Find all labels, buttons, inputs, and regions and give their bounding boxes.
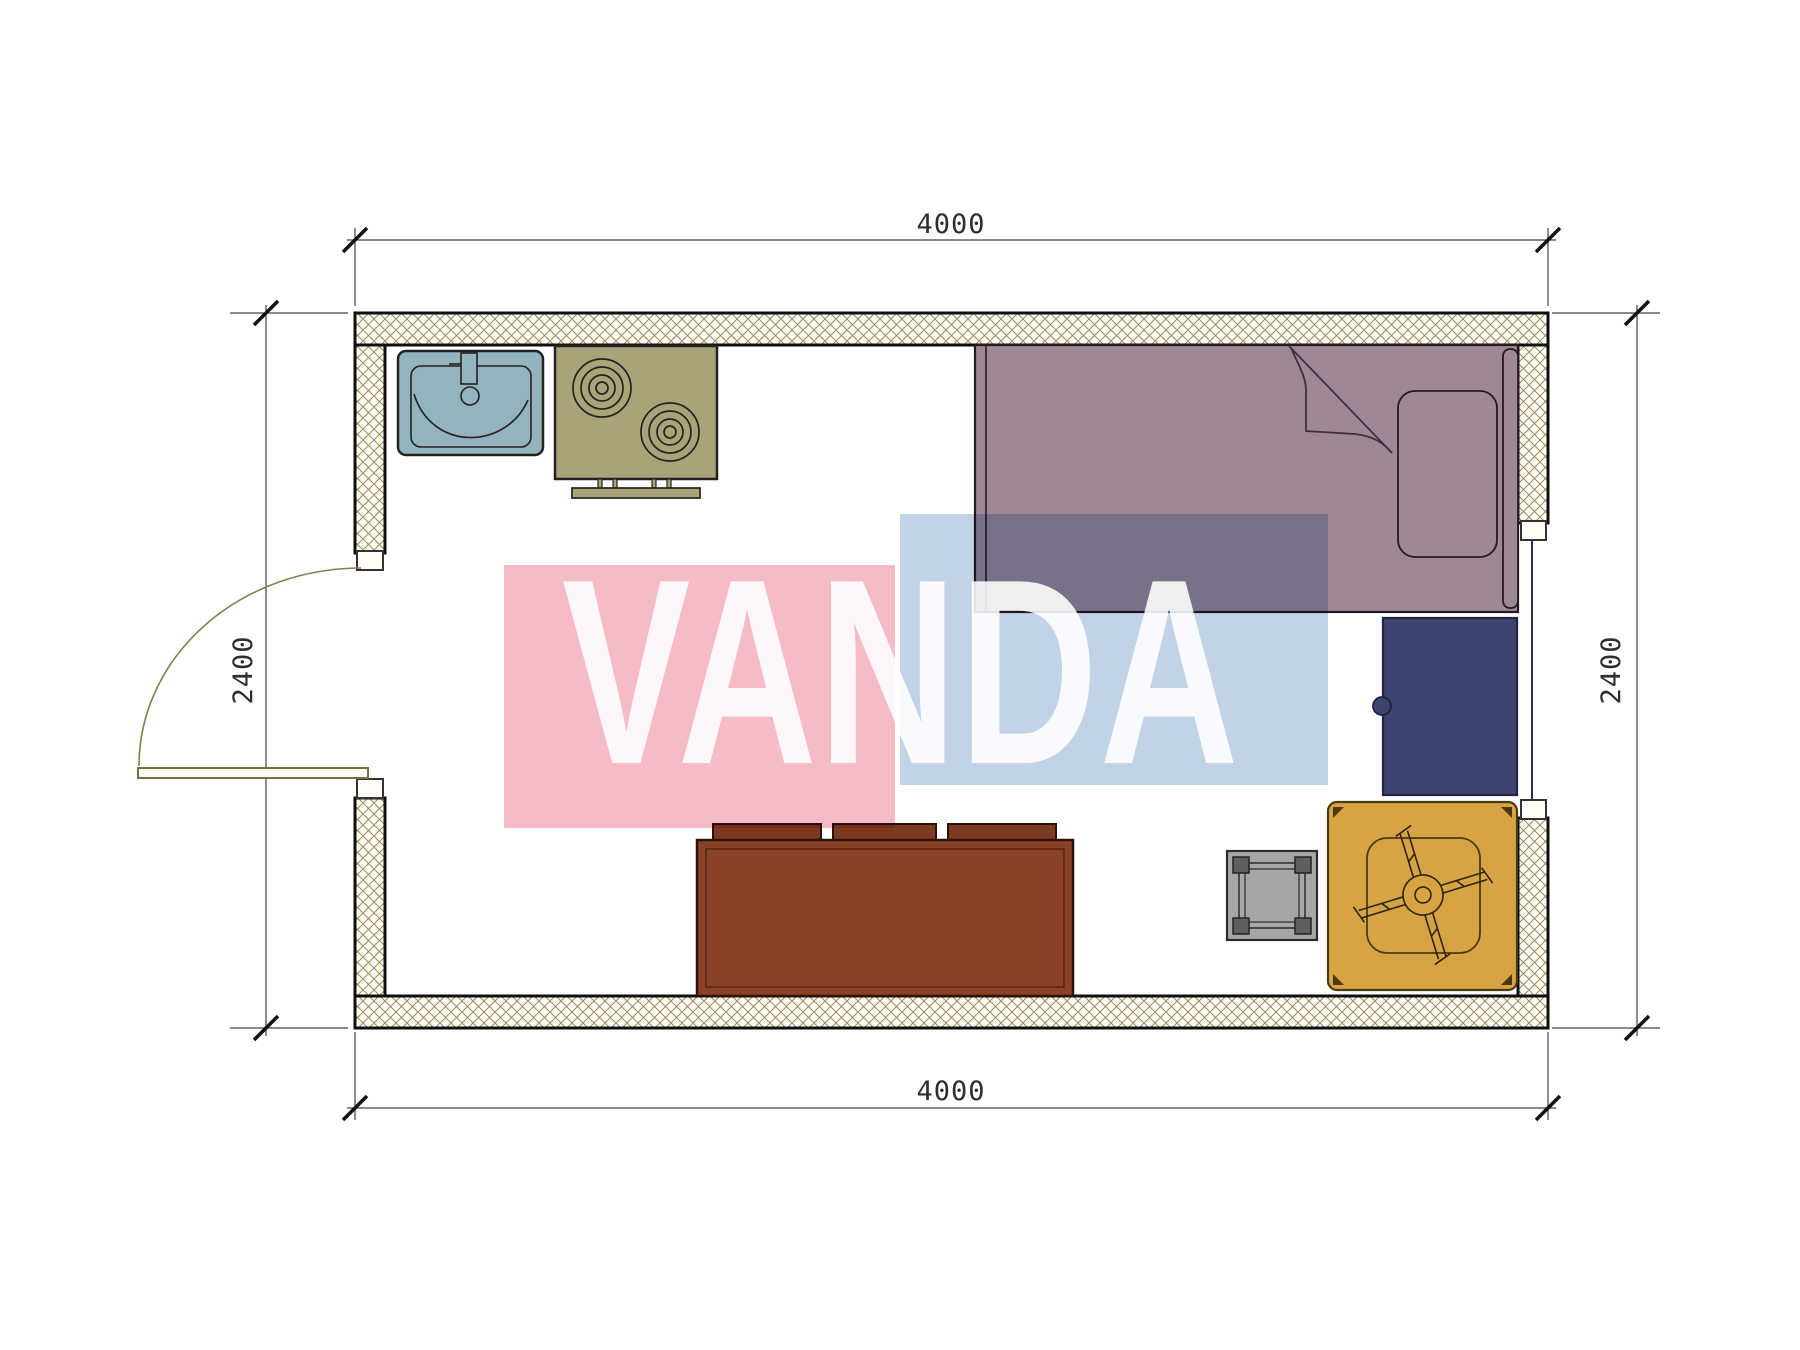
wall-left-upper bbox=[355, 345, 385, 553]
wall-right-upper bbox=[1518, 345, 1548, 523]
stove bbox=[555, 346, 717, 498]
door-leaf bbox=[138, 768, 368, 778]
window bbox=[1521, 521, 1546, 819]
door bbox=[138, 551, 383, 798]
wardrobe bbox=[1373, 618, 1517, 795]
dimension-bottom: 4000 bbox=[343, 1032, 1560, 1120]
table-top bbox=[697, 840, 1073, 996]
dimension-right: 2400 bbox=[1552, 301, 1660, 1040]
window-jamb-top bbox=[1521, 521, 1546, 540]
stove-base bbox=[572, 488, 700, 498]
wall-left-lower bbox=[355, 798, 385, 996]
door-jamb-bottom bbox=[357, 779, 383, 798]
dimension-top-label: 4000 bbox=[916, 209, 985, 240]
floor-plan-canvas: 4000 4000 2400 2400 bbox=[0, 0, 1800, 1350]
wall-bottom bbox=[355, 996, 1548, 1028]
stove-feet bbox=[598, 479, 671, 488]
wall-right-lower bbox=[1518, 818, 1548, 996]
door-jamb-top bbox=[357, 551, 383, 570]
sink-faucet bbox=[461, 353, 477, 384]
bed-mattress-edge bbox=[1503, 349, 1518, 608]
dimension-bottom-label: 4000 bbox=[916, 1076, 985, 1107]
bed-pillow bbox=[1398, 391, 1497, 557]
wall-top bbox=[355, 313, 1548, 345]
wardrobe-knob bbox=[1373, 697, 1391, 715]
stool bbox=[1227, 851, 1317, 940]
dimension-left: 2400 bbox=[228, 301, 348, 1040]
window-jamb-bottom bbox=[1521, 800, 1546, 819]
watermark-text: VANDA bbox=[562, 520, 1240, 824]
sink bbox=[398, 351, 543, 455]
dimension-top: 4000 bbox=[343, 209, 1560, 306]
dimension-right-label: 2400 bbox=[1596, 635, 1627, 704]
armchair bbox=[1328, 802, 1517, 990]
dimension-left-label: 2400 bbox=[228, 635, 259, 704]
dining-table bbox=[697, 824, 1073, 996]
